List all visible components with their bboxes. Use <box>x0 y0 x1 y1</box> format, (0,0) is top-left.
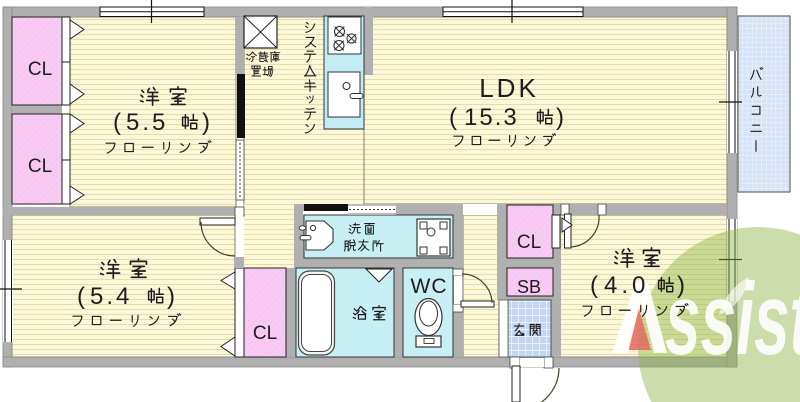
svg-text:ssist: ssist <box>665 263 800 377</box>
svg-text:(: ( <box>449 104 457 131</box>
svg-text:(: ( <box>590 272 598 299</box>
svg-text:(: ( <box>113 109 121 136</box>
svg-text:WC: WC <box>411 275 448 298</box>
svg-text:CL: CL <box>28 59 52 80</box>
svg-text:CL: CL <box>253 323 277 344</box>
svg-text:SB: SB <box>517 277 541 297</box>
svg-text:4.0: 4.0 <box>604 272 649 299</box>
svg-text:): ) <box>677 272 685 299</box>
svg-text:CL: CL <box>28 156 52 177</box>
svg-text:LDK: LDK <box>479 73 539 103</box>
svg-text:): ) <box>202 109 210 136</box>
svg-text:CL: CL <box>517 232 541 253</box>
svg-text:5.4: 5.4 <box>90 283 132 310</box>
svg-text:): ) <box>167 283 175 310</box>
svg-text:15.3: 15.3 <box>464 104 519 131</box>
svg-text:): ) <box>556 104 564 131</box>
svg-text:5.5: 5.5 <box>126 109 168 136</box>
svg-text:(: ( <box>77 283 85 310</box>
